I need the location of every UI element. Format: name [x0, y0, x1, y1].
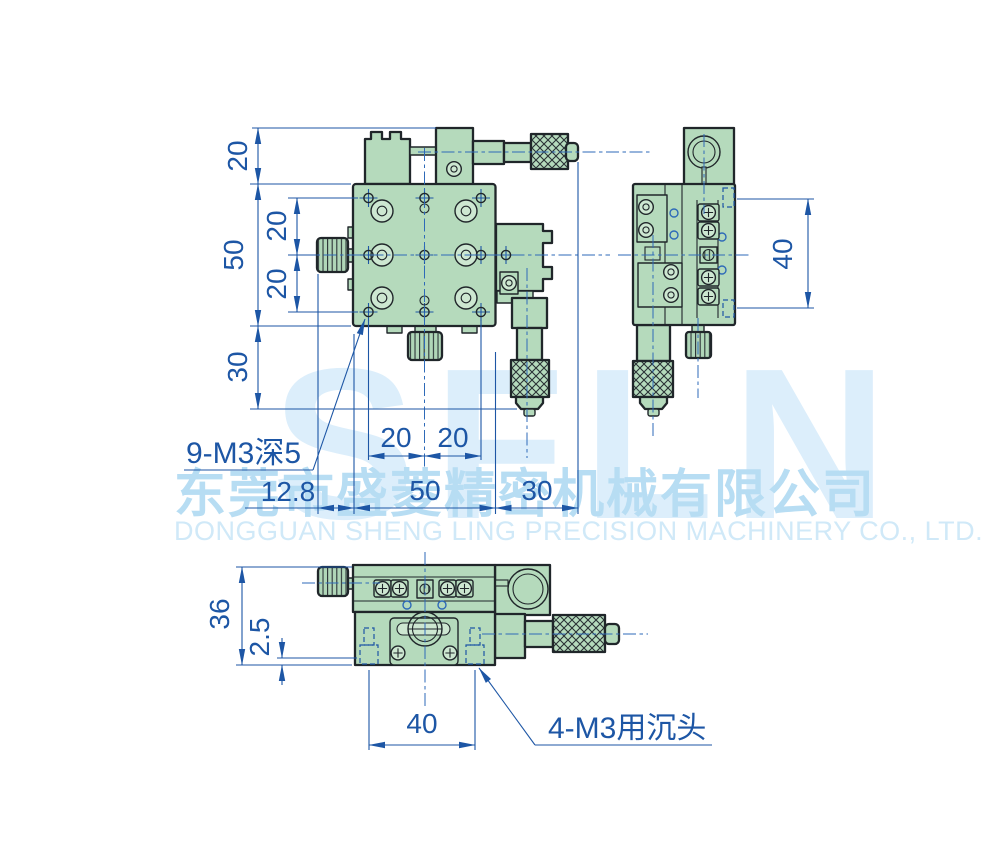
- svg-text:20: 20: [437, 422, 468, 453]
- svg-text:40: 40: [767, 238, 798, 269]
- svg-text:50: 50: [409, 475, 440, 506]
- bottom-base-plate: [390, 612, 458, 665]
- bottom-screw-row: [374, 580, 473, 598]
- front-x-micrometer: [410, 128, 578, 187]
- svg-text:50: 50: [218, 239, 249, 270]
- svg-text:20: 20: [222, 140, 253, 171]
- dim-front-row-gap-upper: 20: [261, 198, 297, 255]
- technical-drawing-page: SFLN 东莞市盛菱精密机械有限公司 DONGGUAN SHENG LING P…: [0, 0, 1001, 853]
- dim-front-bottom-offset: 30: [222, 326, 258, 409]
- svg-text:12.8: 12.8: [261, 476, 316, 507]
- dim-bottom-hole-span: 40: [369, 708, 475, 745]
- dim-front-row-gap-lower: 20: [261, 255, 297, 312]
- stage-drawing-canvas: SFLN 东莞市盛菱精密机械有限公司 DONGGUAN SHENG LING P…: [0, 0, 1001, 853]
- svg-text:4-M3用沉头: 4-M3用沉头: [548, 712, 706, 745]
- dim-front-body-height: 50: [218, 184, 258, 326]
- svg-text:20: 20: [261, 210, 292, 241]
- watermark-company-en: DONGGUAN SHENG LING PRECISION MACHINERY …: [174, 516, 983, 546]
- front-top-left-block: [365, 132, 410, 184]
- svg-text:2.5: 2.5: [244, 618, 275, 657]
- dim-bottom-body-height: 36: [204, 567, 242, 665]
- svg-text:20: 20: [261, 268, 292, 299]
- bottom-left-knob: [318, 567, 355, 596]
- svg-text:36: 36: [204, 598, 235, 629]
- side-dimensions: 40: [737, 199, 814, 308]
- dim-front-top-offset: 20: [222, 128, 258, 184]
- dim-side-hole-span: 40: [767, 199, 808, 308]
- y-micrometer-thimble: [511, 360, 549, 397]
- svg-text:30: 30: [222, 351, 253, 382]
- svg-text:40: 40: [406, 708, 437, 739]
- svg-text:9-M3深5: 9-M3深5: [186, 437, 301, 470]
- bottom-micrometer: [495, 614, 619, 658]
- bottom-view: [318, 565, 619, 665]
- dim-bottom-recess-depth: 2.5: [244, 618, 282, 685]
- callout-bottom-countersunk-holes: 4-M3用沉头: [479, 668, 712, 745]
- svg-text:20: 20: [380, 422, 411, 453]
- svg-text:30: 30: [521, 475, 552, 506]
